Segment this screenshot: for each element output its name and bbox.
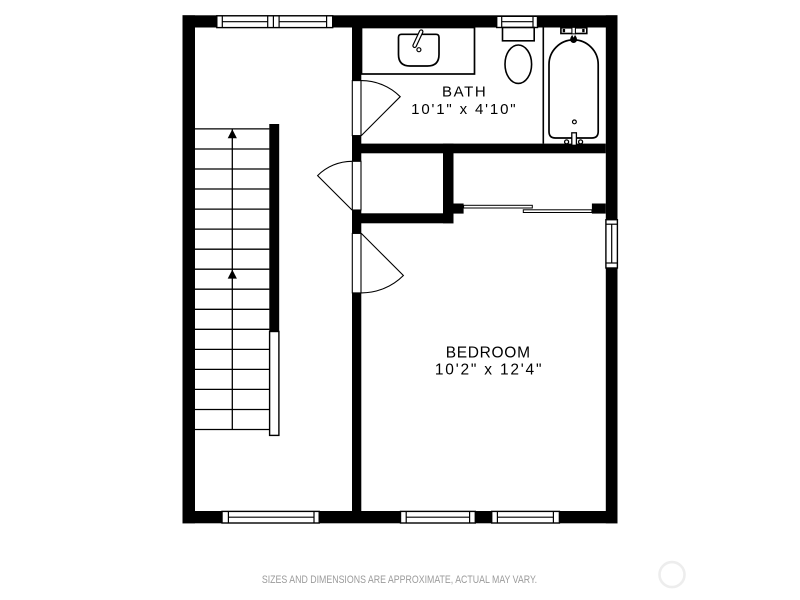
- svg-text:10'1" x 4'10": 10'1" x 4'10": [411, 101, 517, 118]
- svg-text:10'2" x 12'4": 10'2" x 12'4": [435, 362, 543, 379]
- svg-text:BATH: BATH: [442, 84, 487, 101]
- svg-text:SIZES AND DIMENSIONS ARE APPRO: SIZES AND DIMENSIONS ARE APPROXIMATE, AC…: [262, 574, 537, 586]
- svg-text:BEDROOM: BEDROOM: [446, 345, 531, 362]
